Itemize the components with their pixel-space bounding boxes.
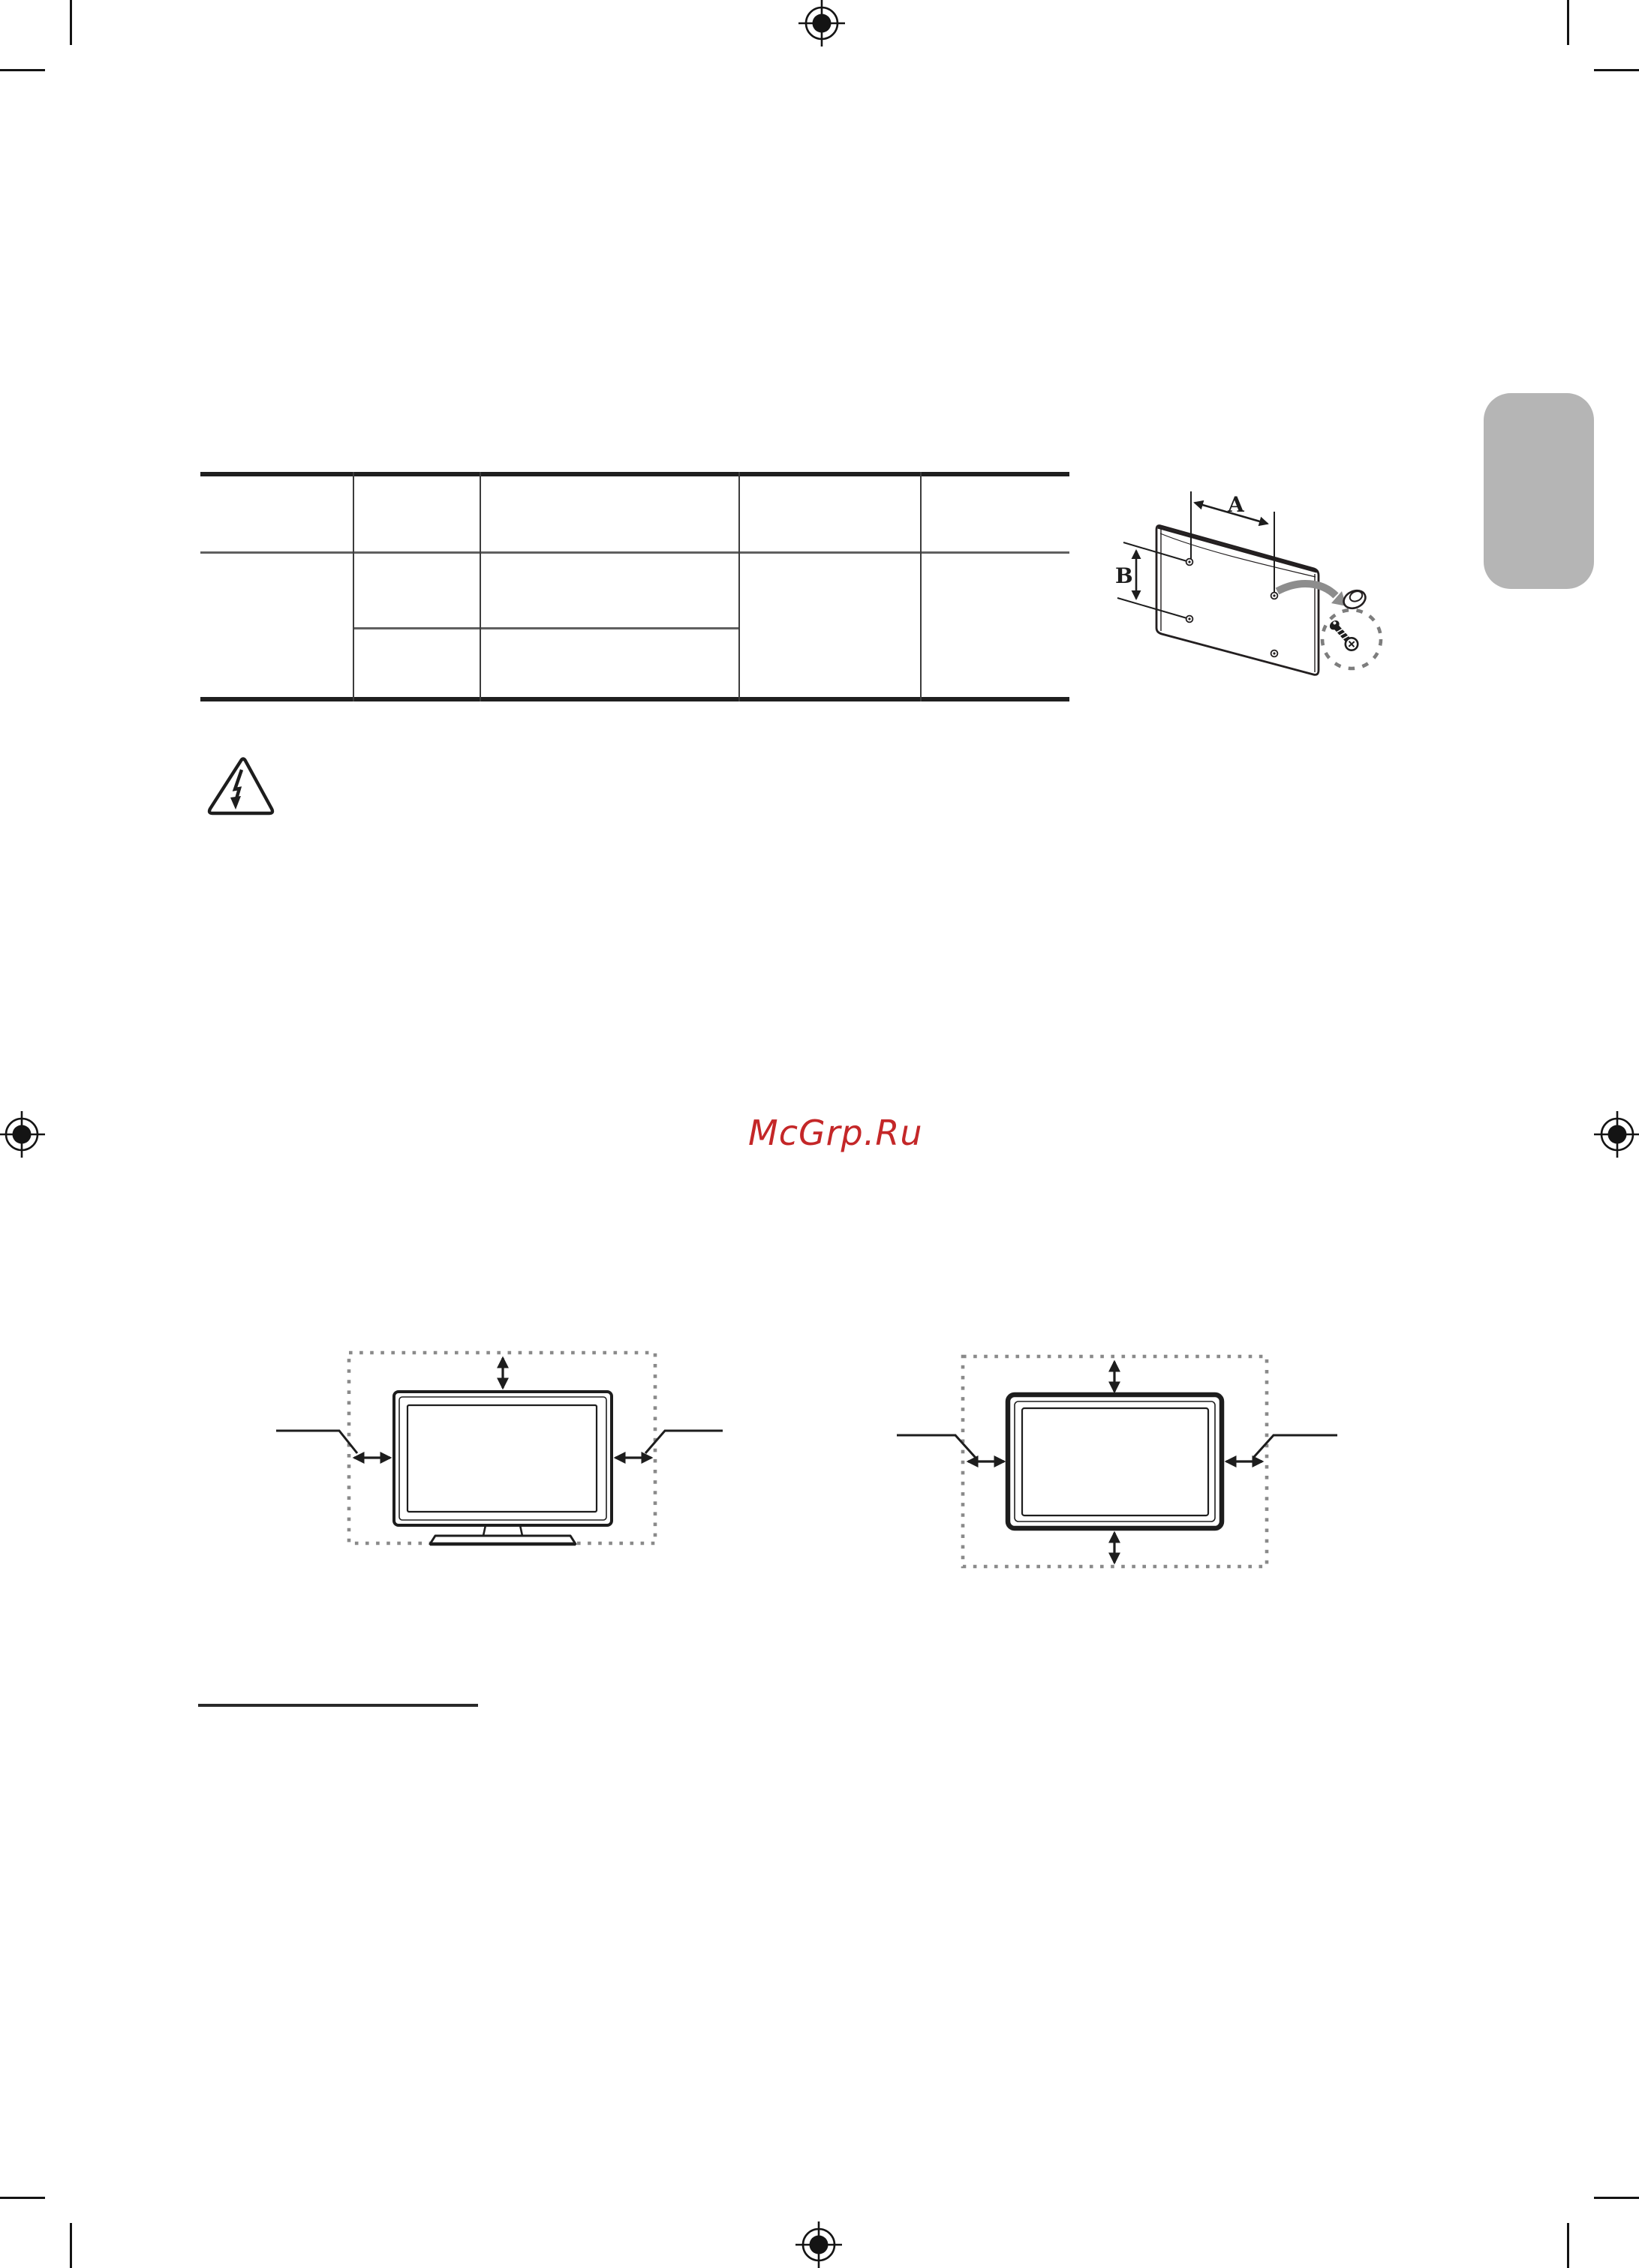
high-voltage-warning-icon bbox=[201, 752, 279, 821]
table-top-border bbox=[200, 472, 1069, 476]
spacer-ring bbox=[1341, 587, 1368, 611]
table-column-rule-3 bbox=[738, 472, 740, 701]
watermark-text: McGrp.Ru bbox=[748, 1113, 922, 1153]
table-bottom-border bbox=[200, 697, 1069, 701]
registration-mark-left bbox=[0, 1110, 46, 1158]
screw-icon bbox=[1328, 618, 1361, 653]
registration-mark-right bbox=[1593, 1110, 1639, 1158]
stand-neck bbox=[483, 1525, 522, 1536]
manual-page: A B bbox=[0, 0, 1639, 2268]
crop-mark-top-left-v bbox=[70, 0, 72, 45]
dimension-a-label: A bbox=[1227, 492, 1245, 517]
crop-mark-top-right-h bbox=[1594, 69, 1639, 71]
crop-mark-bottom-left-v bbox=[70, 2223, 72, 2268]
heading-underline bbox=[198, 1704, 478, 1707]
tv-clearance-diagram-wall bbox=[863, 1343, 1358, 1583]
table-column-rule-2 bbox=[480, 472, 481, 701]
crop-mark-top-left-h bbox=[0, 69, 45, 71]
tv-wall-mounted bbox=[1008, 1395, 1222, 1528]
crop-mark-bottom-right-h bbox=[1594, 2197, 1639, 2199]
table-row-rule bbox=[200, 551, 1069, 554]
crop-mark-bottom-right-v bbox=[1567, 2223, 1569, 2268]
crop-mark-top-right-v bbox=[1567, 0, 1569, 45]
dimension-b-label: B bbox=[1115, 563, 1133, 588]
right-callout-line bbox=[645, 1431, 723, 1453]
crop-mark-bottom-left-h bbox=[0, 2197, 45, 2199]
table-column-rule-4 bbox=[920, 472, 922, 701]
table-column-rule-1 bbox=[353, 472, 354, 701]
wall-mount-illustration: A B bbox=[1081, 465, 1433, 720]
tv-clearance-diagram-stand bbox=[263, 1343, 743, 1561]
tv-with-stand bbox=[394, 1392, 612, 1544]
left-callout-line bbox=[897, 1435, 976, 1458]
left-callout-line bbox=[276, 1431, 357, 1453]
section-side-tab bbox=[1484, 393, 1594, 589]
table-row-rule-partial bbox=[353, 627, 738, 629]
registration-mark-bottom bbox=[795, 2221, 843, 2268]
tv-back-panel bbox=[1156, 526, 1319, 675]
registration-mark-top bbox=[798, 0, 846, 47]
